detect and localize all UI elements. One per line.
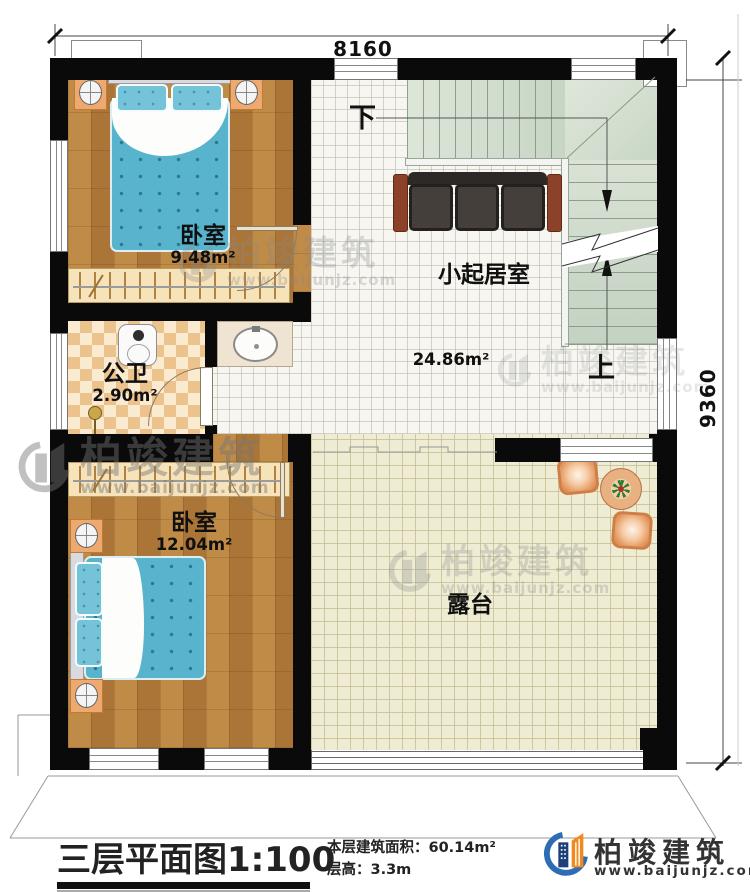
floor-area-label: 本层建筑面积： [327, 840, 429, 856]
title-underline [57, 882, 310, 889]
brand-logo-icon [540, 830, 590, 878]
floor-height-label: 层高： [327, 862, 371, 878]
stair-down-label: 下 [349, 96, 376, 135]
title-text: 三层平面图 [57, 840, 227, 880]
title-scale: 1:100 [227, 840, 335, 880]
room-name: 小起居室 [438, 263, 530, 287]
room-name: 露台 [447, 593, 493, 617]
floor-area-info: 本层建筑面积：60.14m² [327, 836, 496, 857]
dimension-height: 9360 [696, 368, 720, 428]
room-area-living: 24.86m² [413, 350, 490, 369]
dimension-width: 8160 [330, 37, 396, 61]
dimension-lines [55, 24, 742, 766]
terrace-threshold [313, 447, 497, 452]
floor-height-value: 3.3m [371, 862, 412, 878]
room-label-bedroom2: 卧室 12.04m² [156, 511, 233, 554]
eave-outline [10, 715, 716, 838]
room-label-bedroom1: 卧室 9.48m² [170, 224, 235, 267]
room-name: 卧室 [156, 511, 233, 535]
stair-up-label: 上 [588, 346, 615, 385]
room-area: 12.04m² [156, 535, 233, 554]
room-area: 24.86m² [413, 350, 490, 369]
room-area: 2.90m² [92, 386, 157, 405]
stair-down-path [376, 118, 607, 190]
drawing-title: 三层平面图1:100 [57, 832, 335, 881]
room-name: 公卫 [92, 362, 157, 386]
room-name: 卧室 [170, 224, 235, 248]
floor-area-value: 60.14m² [429, 840, 496, 856]
stair-down-arrow-icon [602, 190, 612, 212]
floor-plan-canvas: 柏竣建筑 www.baijunjz.com 柏竣建筑 www.baijunjz.… [0, 0, 750, 892]
room-label-living: 小起居室 [438, 263, 530, 287]
room-area: 9.48m² [170, 248, 235, 267]
room-label-bathroom: 公卫 2.90m² [92, 362, 157, 405]
floor-height-info: 层高：3.3m [327, 858, 411, 879]
room-label-terrace: 露台 [447, 593, 493, 617]
brand-url: www.baijunjz.com [594, 863, 750, 879]
